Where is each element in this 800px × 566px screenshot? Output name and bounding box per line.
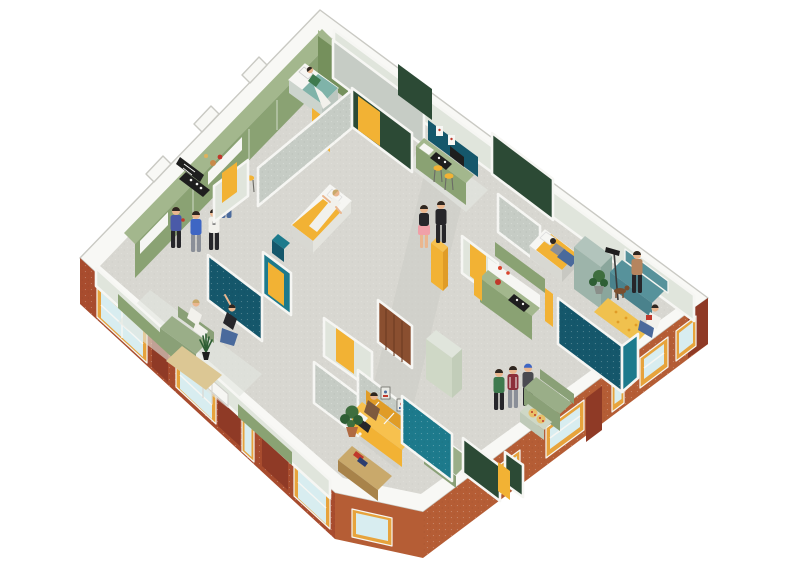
red-cup: [181, 218, 185, 222]
cabinet-side-panel: [474, 262, 482, 301]
red-book: [646, 315, 652, 320]
kettle: [495, 279, 501, 285]
cabinet-side-panel: [545, 288, 553, 327]
illustration-canvas: [0, 0, 800, 566]
picture-frame: [381, 387, 390, 399]
floorplan-illustration: [0, 0, 800, 566]
locker-yellow: [431, 238, 448, 291]
